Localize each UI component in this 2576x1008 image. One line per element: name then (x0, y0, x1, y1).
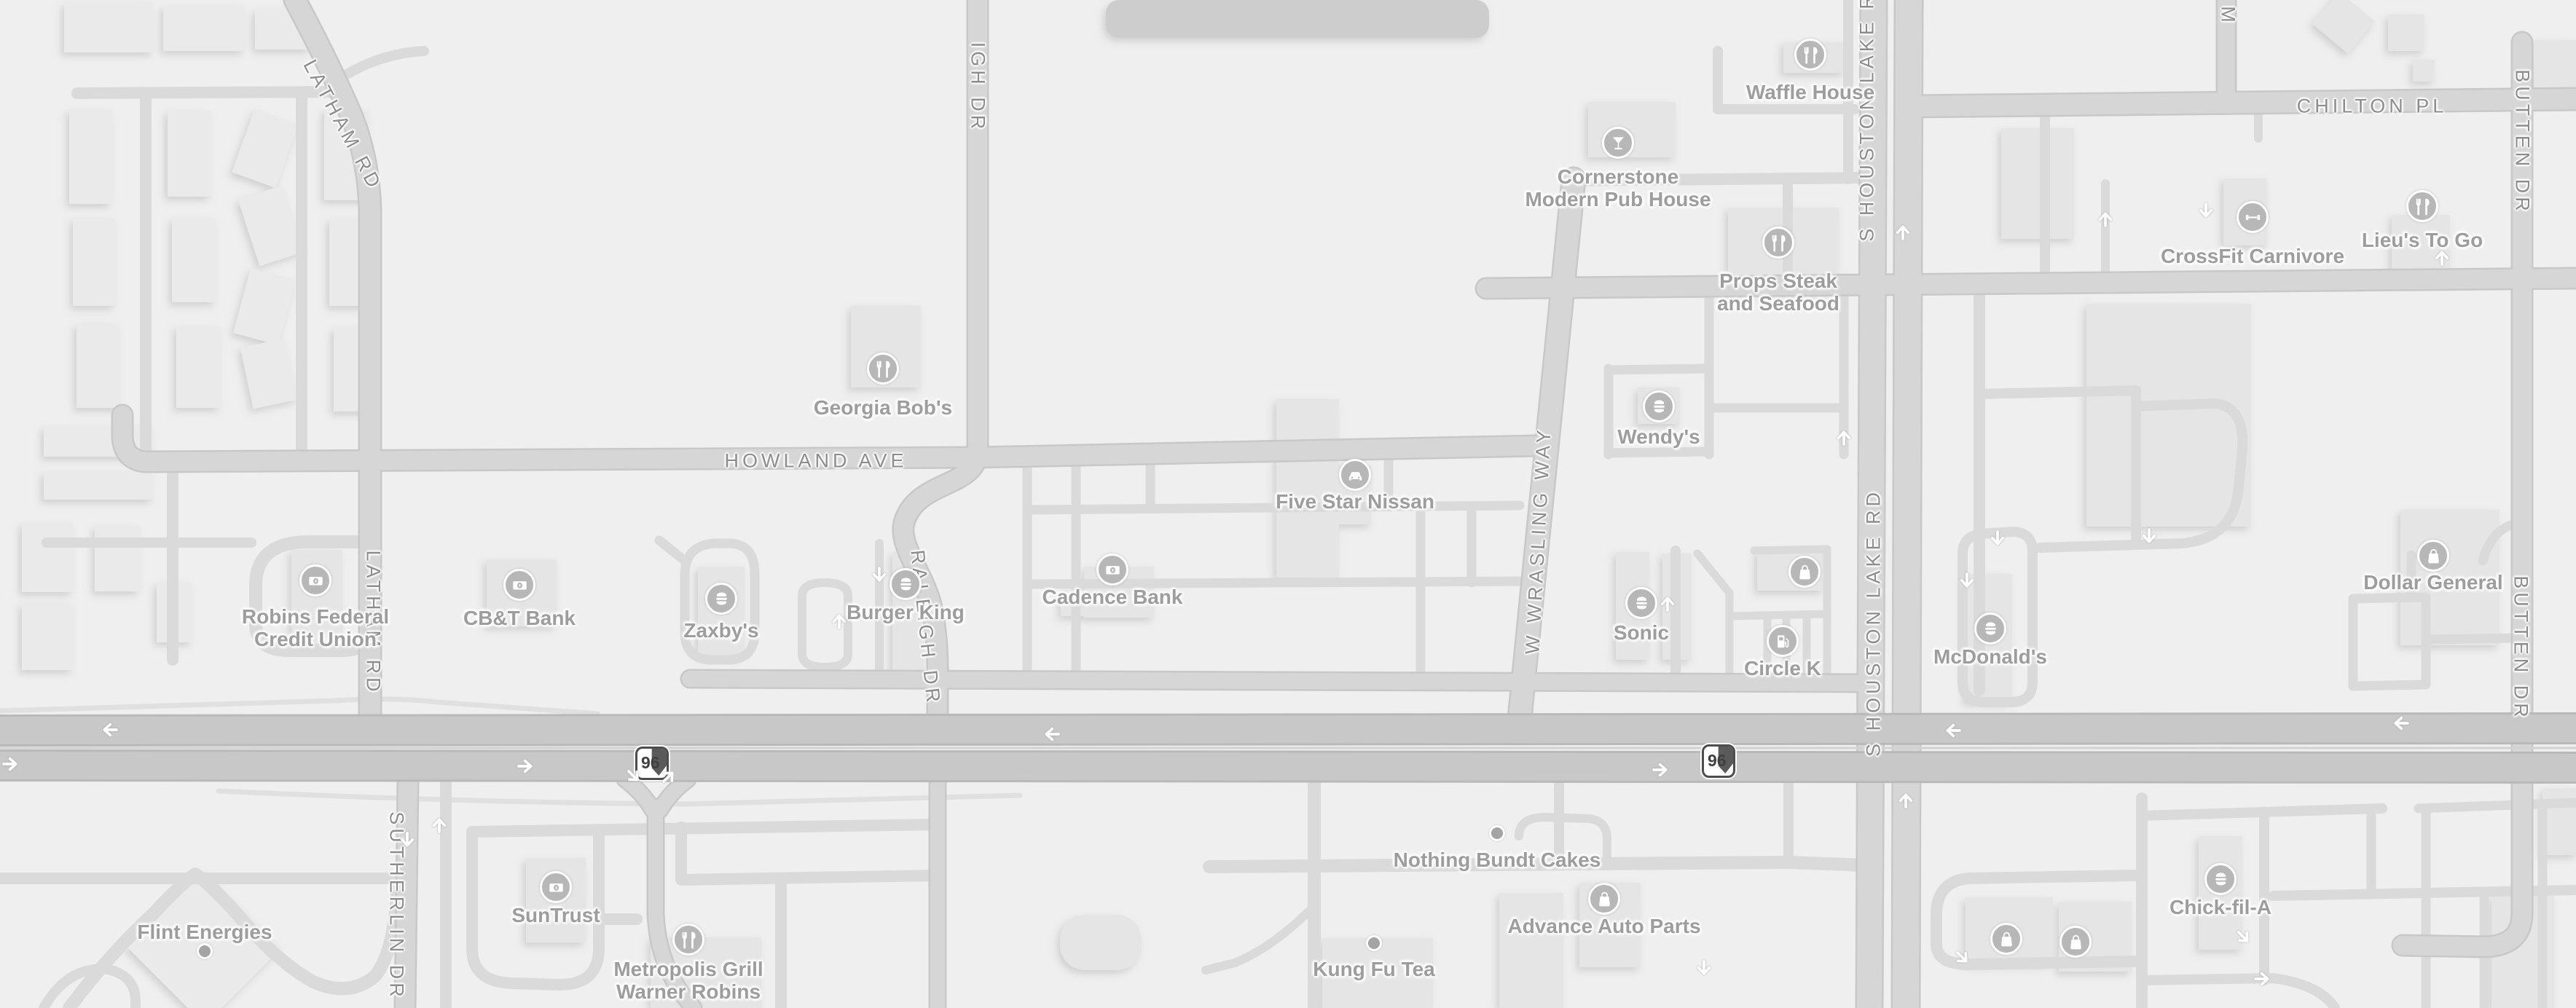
poi-shopping-icon[interactable] (2059, 926, 2092, 958)
dollar-general-label[interactable]: Dollar General (2363, 571, 2502, 594)
road-label-latham-rd: LATHAM RD (299, 56, 387, 194)
suntrust-label[interactable]: SunTrust (511, 904, 600, 927)
direction-arrow-icon (1040, 722, 1063, 746)
mcdonald-s-label[interactable]: McDonald's (1933, 645, 2047, 669)
nothing-bundt-cakes-dot-icon[interactable] (1489, 825, 1505, 841)
road-label-m: M (2217, 6, 2239, 26)
direction-arrow-icon (2251, 967, 2274, 991)
wendy-s-burger-icon[interactable] (1643, 390, 1675, 422)
flint-energies-label[interactable]: Flint Energies (137, 921, 272, 944)
direction-arrow-icon (1692, 957, 1716, 980)
waffle-house-label[interactable]: Waffle House (1746, 81, 1874, 104)
direction-arrow-icon (1941, 719, 1964, 742)
props-steak-and-seafood-restaurant-icon[interactable] (1762, 227, 1794, 259)
robins-federal-credit-union-bank-icon[interactable] (299, 564, 331, 596)
five-star-nissan-label[interactable]: Five Star Nissan (1276, 490, 1434, 513)
direction-arrow-icon (2227, 921, 2260, 953)
cornerstone-modern-pub-house-bar-icon[interactable] (1602, 127, 1634, 159)
road-label-howland-ave: HOWLAND AVE (724, 450, 907, 473)
chick-fil-a-burger-icon[interactable] (2204, 863, 2237, 895)
poi-shopping-icon[interactable] (1788, 556, 1821, 588)
direction-arrow-icon (1946, 941, 1979, 974)
direction-arrow-icon (2094, 207, 2117, 230)
kung-fu-tea-label[interactable]: Kung Fu Tea (1313, 958, 1434, 981)
road-label-w-wrasling-way: W WRASLING WAY (1521, 426, 1555, 655)
direction-arrow-icon (1894, 788, 1917, 811)
robins-federal-credit-union-label[interactable]: Robins Federal (242, 605, 389, 629)
direction-arrow-icon (2430, 245, 2454, 269)
direction-arrow-icon (396, 829, 419, 852)
wendy-s-label[interactable]: Wendy's (1617, 425, 1700, 449)
direction-arrow-icon (428, 813, 451, 836)
direction-arrow-icon (1649, 758, 1673, 781)
direction-arrow-icon (1891, 220, 1915, 243)
mcdonald-s-burger-icon[interactable] (1974, 613, 2006, 645)
road-label-butten-dr: BUTTEN DR (2511, 69, 2534, 215)
metropolis-grill-warner-robins-restaurant-icon[interactable] (672, 924, 704, 956)
direction-arrow-icon (2194, 200, 2218, 223)
road-label-igh-dr: IGH DR (967, 42, 989, 133)
chick-fil-a-label[interactable]: Chick-fil-A (2169, 896, 2271, 919)
advance-auto-parts-label[interactable]: Advance Auto Parts (1507, 915, 1700, 938)
direction-arrow-icon (828, 609, 851, 632)
suntrust-bank-icon[interactable] (540, 871, 572, 903)
georgia-bob-s-label[interactable]: Georgia Bob's (814, 396, 952, 420)
road-label-butten-dr: BUTTEN DR (2510, 575, 2532, 721)
road-label-chilton-pl: CHILTON PL (2297, 95, 2448, 118)
kung-fu-tea-dot-icon[interactable] (1366, 935, 1382, 951)
cb-t-bank-label[interactable]: CB&T Bank (463, 607, 576, 630)
metropolis-grill-warner-robins-label[interactable]: Warner Robins (616, 980, 761, 1004)
direction-arrow-icon (1656, 591, 1679, 615)
cornerstone-modern-pub-house-label[interactable]: Modern Pub House (1525, 188, 1711, 211)
direction-arrow-icon (514, 755, 538, 778)
crossfit-carnivore-label[interactable]: CrossFit Carnivore (2161, 245, 2344, 268)
cadence-bank-bank-icon[interactable] (1096, 554, 1128, 586)
route-shield-96: 96 (1702, 744, 1735, 778)
lieu-s-to-go-label[interactable]: Lieu's To Go (2362, 229, 2483, 252)
sonic-label[interactable]: Sonic (1614, 621, 1669, 645)
props-steak-and-seafood-label[interactable]: and Seafood (1717, 292, 1839, 315)
lieu-s-to-go-restaurant-icon[interactable] (2406, 190, 2438, 222)
sonic-burger-icon[interactable] (1625, 587, 1657, 619)
cornerstone-modern-pub-house-label[interactable]: Cornerstone (1558, 165, 1678, 189)
poi-shopping-icon[interactable] (1990, 923, 2022, 955)
direction-arrow-icon (2389, 712, 2412, 735)
circle-k-label[interactable]: Circle K (1744, 657, 1821, 680)
advance-auto-parts-shopping-icon[interactable] (1588, 883, 1620, 915)
road-label-s-houston-lake-r: S HOUSTON LAKE R (1856, 0, 1879, 242)
direction-arrow-icon (1832, 425, 1856, 449)
flint-energies-dot-icon[interactable] (197, 943, 213, 959)
burger-king-burger-icon[interactable] (890, 568, 922, 600)
map-canvas[interactable]: LATHAM RDLATHAM RDSUTHERLIN DRRALEIGH DR… (0, 0, 2576, 1008)
shield-number: 96 (1708, 751, 1727, 771)
nothing-bundt-cakes-label[interactable]: Nothing Bundt Cakes (1394, 848, 1601, 872)
zaxby-s-burger-icon[interactable] (705, 583, 737, 615)
burger-king-label[interactable]: Burger King (847, 601, 965, 624)
zaxby-s-label[interactable]: Zaxby's (683, 619, 758, 642)
circle-k-fuel-icon[interactable] (1767, 625, 1799, 657)
props-steak-and-seafood-label[interactable]: Props Steak (1719, 269, 1837, 293)
road-label-s-houston-lake-rd: S HOUSTON LAKE RD (1863, 489, 1885, 757)
direction-arrow-icon (0, 752, 23, 776)
direction-arrow-icon (2137, 525, 2161, 548)
crossfit-carnivore-gym-icon[interactable] (2237, 201, 2269, 233)
cb-t-bank-bank-icon[interactable] (503, 569, 535, 601)
five-star-nissan-car-icon[interactable] (1339, 459, 1371, 491)
direction-arrow-icon (1955, 570, 1979, 593)
dollar-general-shopping-icon[interactable] (2417, 540, 2449, 572)
direction-arrow-icon (98, 718, 121, 741)
direction-arrow-icon (1986, 527, 2009, 551)
direction-arrow-icon (868, 564, 891, 587)
metropolis-grill-warner-robins-label[interactable]: Metropolis Grill (613, 958, 763, 981)
cadence-bank-label[interactable]: Cadence Bank (1042, 586, 1183, 609)
robins-federal-credit-union-label[interactable]: Credit Union (254, 628, 377, 651)
map-annotations-layer: LATHAM RDLATHAM RDSUTHERLIN DRRALEIGH DR… (0, 0, 2576, 1008)
georgia-bob-s-restaurant-icon[interactable] (867, 353, 899, 385)
waffle-house-restaurant-icon[interactable] (1794, 39, 1826, 71)
